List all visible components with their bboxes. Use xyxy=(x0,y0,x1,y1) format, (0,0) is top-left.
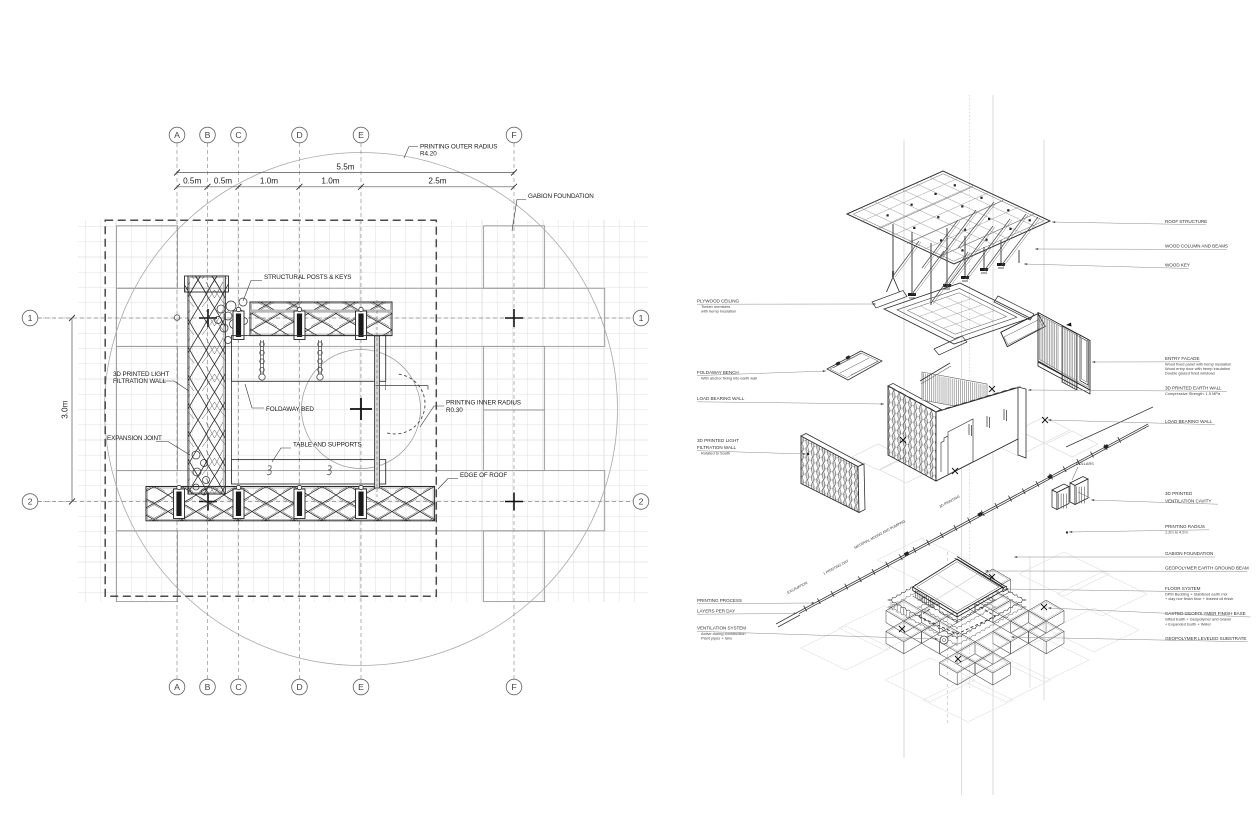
svg-text:FLOOR SYSTEM: FLOOR SYSTEM xyxy=(1165,586,1201,591)
svg-text:R4.20: R4.20 xyxy=(420,151,437,158)
svg-text:1.0m: 1.0m xyxy=(321,177,339,186)
svg-text:TABLE AND SUPPORTS: TABLE AND SUPPORTS xyxy=(293,442,362,449)
svg-text:R0.30: R0.30 xyxy=(446,407,463,414)
svg-text:D: D xyxy=(296,682,302,692)
svg-text:LOAD BEARING WALL: LOAD BEARING WALL xyxy=(697,396,745,401)
svg-text:B: B xyxy=(205,130,211,140)
svg-text:FILTRATION WALL: FILTRATION WALL xyxy=(113,378,167,385)
svg-text:0.5m: 0.5m xyxy=(183,177,201,186)
svg-text:PRINTING OUTER RADIUS: PRINTING OUTER RADIUS xyxy=(420,144,497,151)
svg-text:A: A xyxy=(174,682,180,692)
svg-text:FILTRATION WALL: FILTRATION WALL xyxy=(697,445,736,450)
svg-text:3D PRINTED EARTH WALL: 3D PRINTED EARTH WALL xyxy=(1165,386,1222,391)
svg-text:With anchor fixing into earth: With anchor fixing into earth wall xyxy=(701,375,757,380)
svg-text:ENTRY FACADE: ENTRY FACADE xyxy=(1165,356,1199,361)
svg-text:EDGE OF ROOF: EDGE OF ROOF xyxy=(460,472,507,479)
svg-text:+ clay rice finish floor + lin: + clay rice finish floor + linseed oil f… xyxy=(1165,596,1233,601)
svg-text:PRINTING RADIUS: PRINTING RADIUS xyxy=(1165,524,1205,529)
svg-text:WOOD KEY: WOOD KEY xyxy=(1165,263,1190,268)
svg-text:GABION FOUNDATION: GABION FOUNDATION xyxy=(1165,551,1213,556)
svg-text:1: 1 xyxy=(639,313,644,323)
svg-text:3D PRINTED: 3D PRINTED xyxy=(1165,491,1193,496)
svg-text:3D PRINTED LIGHT: 3D PRINTED LIGHT xyxy=(113,371,169,378)
svg-text:EXPANSION JOINT: EXPANSION JOINT xyxy=(107,435,162,442)
svg-text:D: D xyxy=(296,130,302,140)
svg-text:E: E xyxy=(358,682,364,692)
svg-text:0.5m: 0.5m xyxy=(214,177,232,186)
svg-text:C: C xyxy=(235,130,241,140)
svg-text:C: C xyxy=(235,682,241,692)
svg-text:PRINTING PROCESS: PRINTING PROCESS xyxy=(697,598,742,603)
svg-text:2.5m: 2.5m xyxy=(428,177,446,186)
svg-text:1.0m: 1.0m xyxy=(260,177,278,186)
svg-text:5.5m: 5.5m xyxy=(336,162,354,171)
svg-text:1.2m to 4.2m: 1.2m to 4.2m xyxy=(1165,530,1188,535)
svg-text:2: 2 xyxy=(639,497,644,507)
svg-text:A: A xyxy=(174,130,180,140)
svg-text:3D PRINTED LIGHT: 3D PRINTED LIGHT xyxy=(697,438,739,443)
svg-text:WOOD COLUMN AND BEAMS: WOOD COLUMN AND BEAMS xyxy=(1165,244,1228,249)
svg-text:PRINTING INNER RADIUS: PRINTING INNER RADIUS xyxy=(446,400,521,407)
svg-text:ROOF STRUCTURE: ROOF STRUCTURE xyxy=(1165,219,1207,224)
svg-text:F: F xyxy=(511,682,516,692)
svg-text:Double glazed fixed windows: Double glazed fixed windows xyxy=(1165,371,1215,376)
svg-text:Compressive Strength: 1.5 MPa: Compressive Strength: 1.5 MPa xyxy=(1165,391,1221,396)
svg-text:+ Expanded Earth + Water: + Expanded Earth + Water xyxy=(1165,621,1212,626)
svg-text:GEOPOLYMER EARTH GROUND BEAM: GEOPOLYMER EARTH GROUND BEAM xyxy=(1165,566,1249,571)
svg-text:1: 1 xyxy=(28,313,33,323)
svg-text:F: F xyxy=(511,130,516,140)
svg-text:STRUCTURAL POSTS & KEYS: STRUCTURAL POSTS & KEYS xyxy=(264,274,351,281)
svg-text:Plant pipes + fans: Plant pipes + fans xyxy=(701,636,732,641)
svg-text:with hemp insulation: with hemp insulation xyxy=(701,309,736,314)
svg-text:E: E xyxy=(358,130,364,140)
svg-text:GABION FOUNDATION: GABION FOUNDATION xyxy=(528,193,594,200)
svg-text:LOAD BEARING WALL: LOAD BEARING WALL xyxy=(1165,419,1213,424)
svg-text:3.0m: 3.0m xyxy=(61,400,70,418)
svg-text:LAYERS PER DAY: LAYERS PER DAY xyxy=(697,608,735,613)
svg-text:FOLDAWAY BED: FOLDAWAY BED xyxy=(266,406,314,413)
svg-text:VENTILATION SYSTEM: VENTILATION SYSTEM xyxy=(697,626,746,631)
svg-text:2: 2 xyxy=(28,497,33,507)
svg-text:COLLARS: COLLARS xyxy=(1076,462,1094,466)
svg-text:PLYWOOD CEILING: PLYWOOD CEILING xyxy=(697,298,740,303)
svg-text:FOLDAWAY BENCH: FOLDAWAY BENCH xyxy=(697,370,739,375)
svg-text:B: B xyxy=(205,682,211,692)
svg-text:Rotated to South: Rotated to South xyxy=(701,450,730,455)
